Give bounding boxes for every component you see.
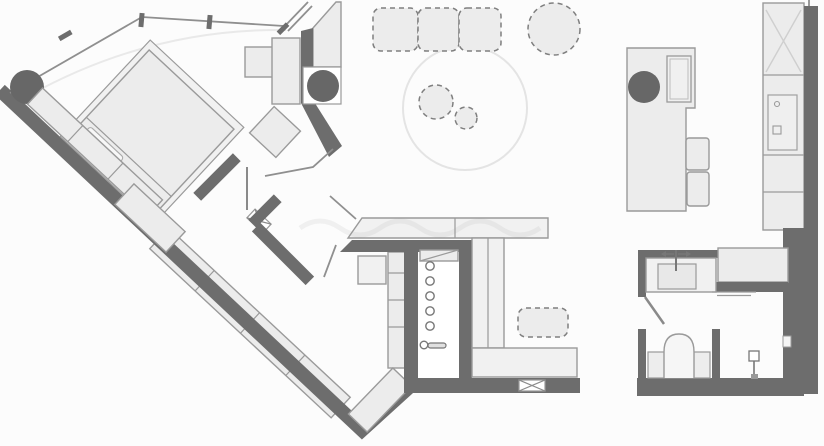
- shower-head: [749, 351, 759, 361]
- bar-stool-1: [686, 138, 709, 170]
- bathroom-bottom-wall: [637, 378, 804, 396]
- sofa-seat-3: [459, 8, 501, 51]
- corridor-floor: [418, 252, 459, 378]
- entry-bench: [472, 348, 577, 377]
- wall-niche: [783, 336, 791, 347]
- door-handle-bar: [428, 343, 446, 348]
- bathroom-left-wall-upper: [638, 250, 646, 297]
- coat-hook: [426, 292, 434, 300]
- coat-hook: [426, 322, 434, 330]
- right-exterior-wall: [804, 6, 818, 394]
- bathroom-left-wall-lower: [638, 329, 646, 379]
- door-handle-knob: [420, 341, 428, 349]
- coat-hook: [426, 262, 434, 270]
- tv-screen: [245, 47, 273, 77]
- armchair-dashed-circle: [528, 3, 580, 55]
- coat-hook: [426, 307, 434, 315]
- corridor-wall-left: [404, 240, 418, 390]
- island-cooktop: [667, 56, 691, 102]
- oven: [768, 95, 797, 150]
- shower-low-wall: [710, 282, 788, 292]
- tv-console: [272, 38, 300, 104]
- sofa-seat-2: [418, 8, 459, 51]
- structural-column-right: [307, 70, 339, 102]
- floor-plan: [0, 0, 824, 446]
- island-sink-bowl: [628, 71, 660, 103]
- closet-shelf-box: [358, 256, 386, 284]
- entry-bottom-wall: [404, 378, 580, 393]
- entry-pouf: [518, 308, 568, 337]
- corridor-wall-right: [459, 240, 472, 392]
- floor-plan-drawing: [0, 0, 824, 446]
- bar-stool-2: [687, 172, 709, 206]
- toilet-bowl: [664, 334, 694, 378]
- sofa-seat-1: [373, 8, 418, 51]
- shower-base: [751, 374, 758, 379]
- toilet-partition-wall: [712, 329, 720, 379]
- closet-shelf-column: [388, 252, 405, 368]
- coffee-table-large: [419, 85, 453, 119]
- coat-hook: [426, 277, 434, 285]
- shower-tray: [718, 248, 788, 282]
- coffee-table-small: [455, 107, 477, 129]
